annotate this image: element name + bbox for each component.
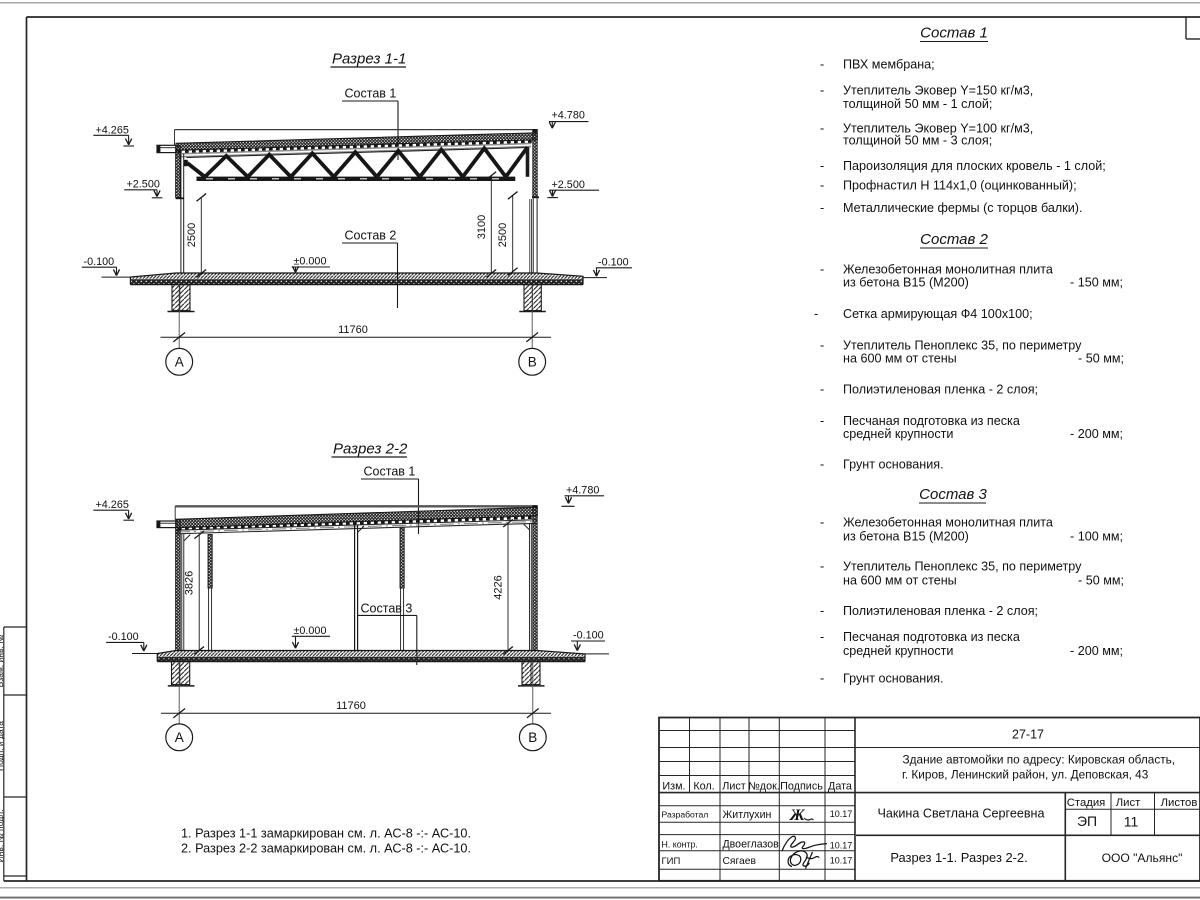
svg-text:Подпись: Подпись	[780, 781, 823, 793]
svg-text:-0.100: -0.100	[598, 256, 629, 268]
svg-text:Взам. инв. №: Взам. инв. №	[0, 635, 5, 688]
svg-text:-: -	[820, 383, 824, 397]
svg-text:Н. контр.: Н. контр.	[662, 840, 698, 850]
svg-text:±0.000: ±0.000	[294, 256, 327, 268]
svg-text:Ж: Ж	[789, 807, 806, 824]
svg-text:Разрез 2-2: Разрез 2-2	[333, 441, 408, 458]
svg-text:-: -	[820, 338, 824, 352]
svg-text:г. Киров, Ленинский район, ул.: г. Киров, Ленинский район, ул. Деповская…	[902, 768, 1149, 782]
svg-text:10.17: 10.17	[830, 841, 853, 851]
svg-text:-0.100: -0.100	[108, 631, 139, 643]
svg-text:Полиэтиленовая пленка - 2 слоя: Полиэтиленовая пленка - 2 слоя;	[843, 604, 1038, 618]
svg-text:А: А	[175, 730, 184, 745]
svg-text:средней крупности: средней крупности	[843, 644, 953, 658]
svg-text:+2.500: +2.500	[127, 178, 160, 190]
svg-text:Разрез 1-1. Разрез 2-2.: Разрез 1-1. Разрез 2-2.	[890, 850, 1027, 865]
svg-text:Дата: Дата	[828, 781, 852, 793]
svg-text:-: -	[820, 121, 824, 135]
svg-text:- 50 мм;: - 50 мм;	[1078, 351, 1124, 365]
svg-text:толщиной 50 мм - 1 слой;: толщиной 50 мм - 1 слой;	[843, 97, 992, 111]
svg-text:Состав 2: Состав 2	[345, 229, 397, 243]
svg-text:Железобетонная монолитная пли: Железобетонная монолитная плита	[843, 515, 1053, 529]
svg-text:Подп. и дата: Подп. и дата	[0, 721, 5, 771]
svg-text:Разрез 1-1: Разрез 1-1	[332, 51, 406, 68]
svg-text:Двоеглазов: Двоеглазов	[723, 839, 780, 851]
svg-text:-: -	[820, 414, 824, 428]
svg-text:-: -	[814, 307, 818, 321]
svg-text:- 200 мм;: - 200 мм;	[1070, 644, 1123, 658]
svg-text:на 600 мм от стены: на 600 мм от стены	[843, 574, 957, 588]
svg-text:Лист: Лист	[1116, 797, 1141, 809]
svg-text:Песчаная подготовка из песка: Песчаная подготовка из песка	[843, 630, 1020, 644]
svg-text:ЭП: ЭП	[1077, 813, 1097, 829]
svg-text:10.17: 10.17	[830, 856, 853, 866]
svg-text:-: -	[820, 201, 824, 215]
svg-text:3100: 3100	[476, 215, 488, 239]
svg-text:11: 11	[1124, 814, 1139, 830]
svg-text:Утеплитель Пеноплекс 35, по пе: Утеплитель Пеноплекс 35, по периметру	[843, 560, 1082, 574]
svg-text:Состав 3: Состав 3	[361, 602, 413, 616]
svg-text:-: -	[820, 604, 824, 618]
svg-text:Кол.: Кол.	[693, 781, 714, 793]
svg-text:Песчаная подготовка из песка: Песчаная подготовка из песка	[843, 414, 1020, 428]
svg-text:-: -	[820, 672, 824, 686]
svg-text:+4.265: +4.265	[96, 499, 129, 511]
svg-text:Стадия: Стадия	[1067, 797, 1106, 809]
svg-text:ГИП: ГИП	[662, 856, 681, 867]
svg-text:- 150 мм;: - 150 мм;	[1070, 276, 1123, 290]
svg-text:Изм.: Изм.	[662, 781, 685, 793]
svg-text:±0.000: ±0.000	[294, 625, 327, 637]
svg-text:Разработал: Разработал	[662, 810, 709, 820]
svg-text:Утеплитель Пеноплекс 35, по пе: Утеплитель Пеноплекс 35, по периметру	[843, 338, 1082, 352]
svg-text:- 50 мм;: - 50 мм;	[1078, 574, 1124, 588]
svg-text:2. Разрез 2-2 замаркирован см.: 2. Разрез 2-2 замаркирован см. л. АС-8 -…	[181, 842, 471, 856]
svg-text:Состав 1: Состав 1	[920, 25, 988, 42]
svg-text:В: В	[528, 355, 537, 370]
svg-text:Металлические фермы (с торцов: Металлические фермы (с торцов балки).	[843, 201, 1082, 215]
svg-text:Сягаев: Сягаев	[723, 856, 757, 867]
svg-text:- 100 мм;: - 100 мм;	[1070, 529, 1123, 543]
svg-text:№док.: №док.	[748, 781, 780, 793]
svg-text:- 200 мм;: - 200 мм;	[1070, 427, 1123, 441]
svg-text:Сетка армирующая Ф4 100х100;: Сетка армирующая Ф4 100х100;	[843, 307, 1033, 321]
svg-text:11760: 11760	[338, 324, 368, 336]
svg-text:Грунт основания.: Грунт основания.	[843, 457, 944, 471]
svg-text:27-17: 27-17	[1012, 728, 1044, 742]
svg-text:Состав 2: Состав 2	[920, 231, 988, 248]
svg-text:Инв. № подл.: Инв. № подл.	[0, 810, 5, 863]
svg-text:2500: 2500	[497, 223, 509, 247]
svg-text:1. Разрез 1-1 замаркирован см.: 1. Разрез 1-1 замаркирован см. л. АС-8 -…	[181, 827, 471, 841]
svg-text:-: -	[820, 263, 824, 277]
svg-text:Состав 3: Состав 3	[919, 486, 987, 503]
svg-text:-: -	[820, 515, 824, 529]
svg-text:-: -	[820, 178, 824, 192]
svg-text:+4.780: +4.780	[566, 484, 599, 496]
svg-text:Лист: Лист	[722, 781, 746, 793]
svg-text:Житлухин: Житлухин	[723, 809, 772, 821]
svg-text:-: -	[820, 83, 824, 97]
svg-text:из бетона В15 (М200): из бетона В15 (М200)	[843, 529, 969, 543]
svg-text:Состав 1: Состав 1	[364, 465, 416, 479]
svg-text:3826: 3826	[184, 571, 196, 595]
svg-text:В: В	[528, 730, 537, 745]
svg-text:Утеплитель Эковер Y=150 кг/м3,: Утеплитель Эковер Y=150 кг/м3,	[843, 83, 1033, 97]
svg-text:-: -	[820, 57, 824, 71]
svg-text:Профнастил Н 114х1,0 (оцинкова: Профнастил Н 114х1,0 (оцинкованный);	[843, 178, 1077, 192]
svg-text:из бетона В15 (М200): из бетона В15 (М200)	[843, 276, 969, 290]
svg-text:Здание автомойки по адресу: Ки: Здание автомойки по адресу: Кировская об…	[903, 753, 1176, 767]
svg-text:Полиэтиленовая пленка - 2 слоя: Полиэтиленовая пленка - 2 слоя;	[843, 383, 1038, 397]
svg-text:Пароизоляция для плоских крове: Пароизоляция для плоских кровель - 1 сло…	[843, 159, 1106, 173]
svg-text:+4.780: +4.780	[552, 109, 585, 121]
svg-text:средней крупности: средней крупности	[843, 427, 953, 441]
svg-text:2500: 2500	[186, 223, 198, 247]
svg-text:-0.100: -0.100	[573, 630, 604, 642]
svg-text:+2.500: +2.500	[552, 179, 585, 191]
svg-text:Железобетонная монолитная пли: Железобетонная монолитная плита	[843, 263, 1053, 277]
svg-text:Листов: Листов	[1161, 797, 1198, 809]
svg-text:А: А	[175, 355, 184, 370]
svg-text:4226: 4226	[492, 575, 504, 599]
svg-text:+4.265: +4.265	[96, 124, 129, 136]
svg-text:-: -	[820, 630, 824, 644]
svg-text:11760: 11760	[336, 700, 366, 712]
svg-text:ООО "Альянс": ООО "Альянс"	[1102, 851, 1183, 865]
svg-text:Чакина Светлана Сергеевна: Чакина Светлана Сергеевна	[877, 807, 1044, 821]
svg-text:на 600 мм от стены: на 600 мм от стены	[843, 351, 957, 365]
svg-text:-: -	[820, 159, 824, 173]
svg-text:10.17: 10.17	[830, 809, 853, 819]
svg-text:-0.100: -0.100	[84, 256, 115, 268]
svg-text:ПВХ мембрана;: ПВХ мембрана;	[843, 57, 935, 71]
svg-text:Грунт основания.: Грунт основания.	[843, 672, 944, 686]
svg-text:-: -	[820, 560, 824, 574]
svg-text:толщиной 50 мм - 3 слоя;: толщиной 50 мм - 3 слоя;	[843, 134, 992, 148]
svg-text:Состав 1: Состав 1	[345, 87, 397, 101]
svg-text:-: -	[820, 457, 824, 471]
